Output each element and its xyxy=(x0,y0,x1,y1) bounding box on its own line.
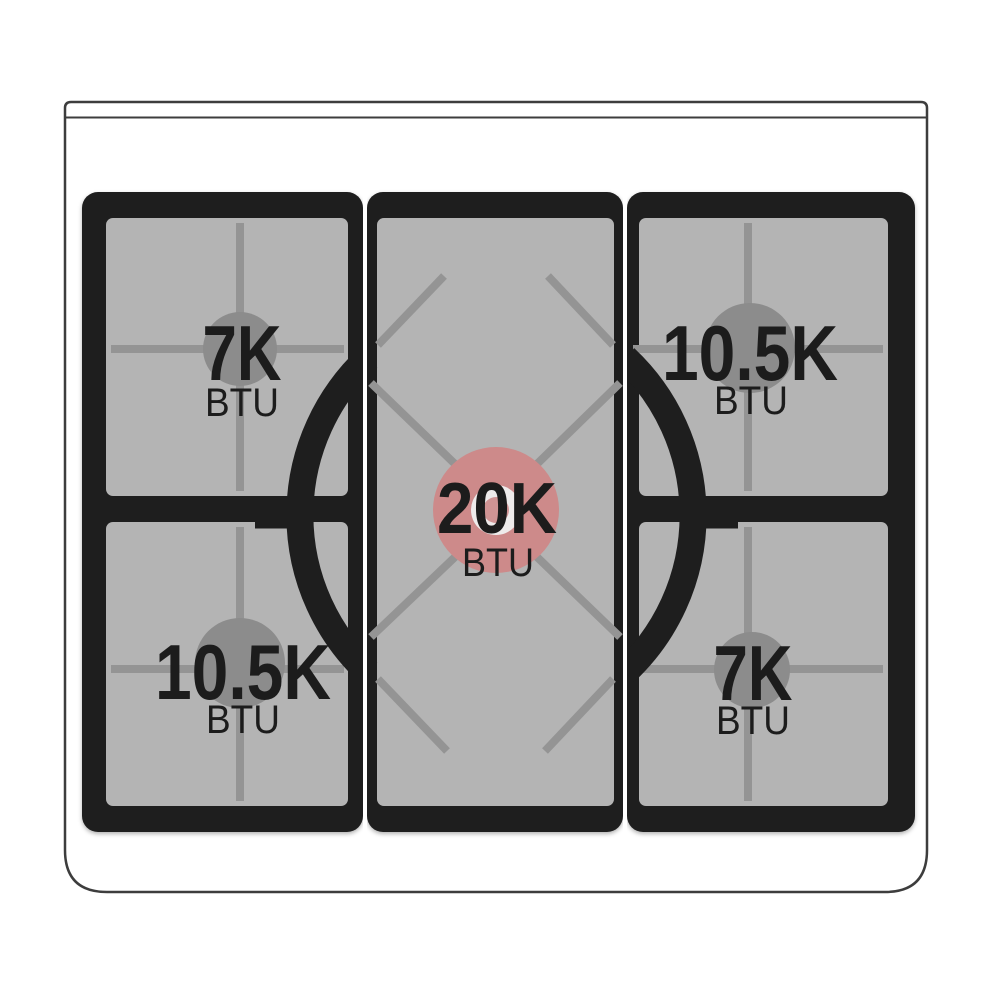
burner-unit-label-top-right: BTU xyxy=(714,379,788,423)
burner-unit-label-bottom-right: BTU xyxy=(716,699,790,743)
burner-power-label-center: 20K xyxy=(437,469,557,549)
burner-unit-label-center: BTU xyxy=(462,541,534,585)
burner-unit-label-bottom-left: BTU xyxy=(206,698,280,742)
cooktop-diagram: 7K BTU 10.5K BTU 20K BTU 10.5K BTU 7K BT… xyxy=(0,0,1000,1000)
burner-unit-label-top-left: BTU xyxy=(205,381,279,425)
cooktop-diagram-svg: 7K BTU 10.5K BTU 20K BTU 10.5K BTU 7K BT… xyxy=(0,0,1000,1000)
